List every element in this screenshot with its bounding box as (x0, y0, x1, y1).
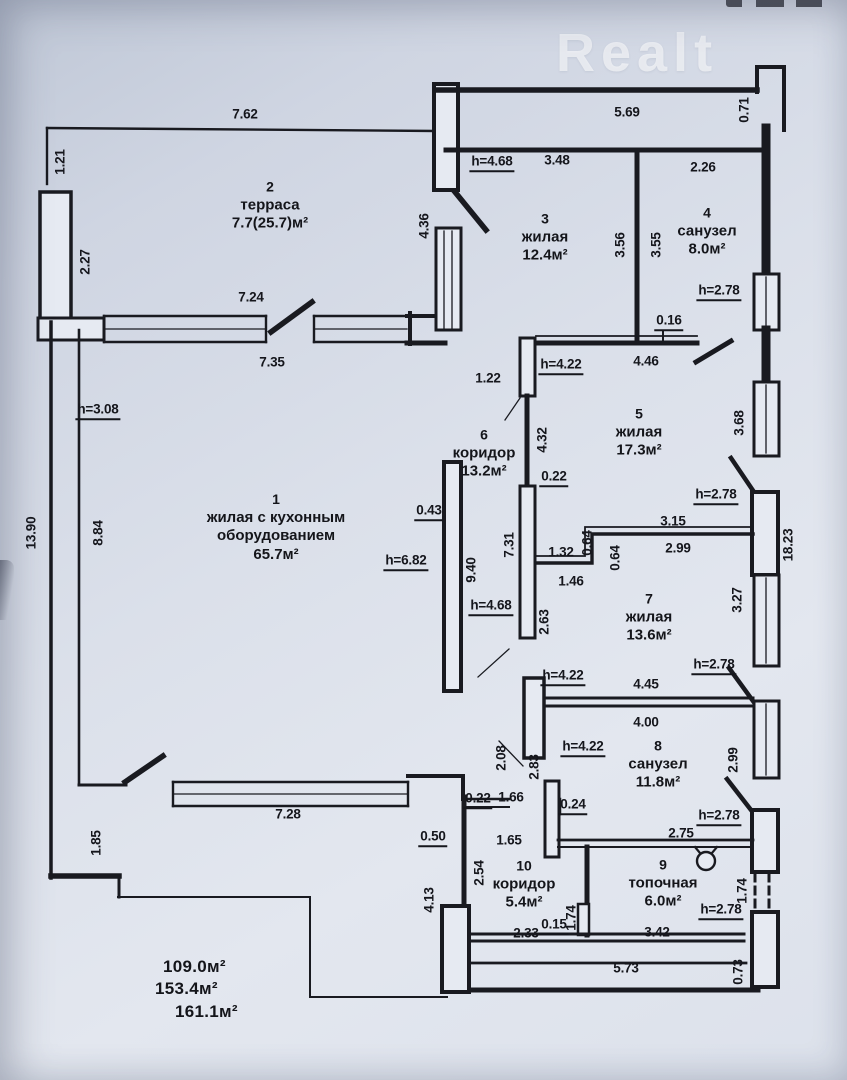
dimension-label: 1.22 (475, 371, 500, 385)
dimension-label: 3.56 (613, 232, 627, 257)
realt-watermark: Realt (556, 22, 718, 84)
cropped-text-fragment (726, 0, 838, 7)
dimension-label: 0.15 (539, 917, 568, 935)
dimension-label: 0.64 (608, 545, 622, 570)
dimension-label: h=6.82 (383, 553, 428, 571)
dimension-label: 3.55 (649, 232, 663, 257)
dimension-label: h=4.22 (560, 739, 605, 757)
dimension-label: 2.08 (494, 745, 508, 770)
dimension-label: 2.54 (472, 860, 486, 885)
dimension-label: 2.33 (513, 926, 538, 940)
dimension-label: 7.31 (502, 532, 516, 557)
room-label: 9топочная6.0м² (628, 857, 697, 912)
dimension-label: 0.22 (463, 791, 492, 809)
area-totals: 109.0м²153.4м²161.1м² (163, 956, 238, 1023)
floorplan-photo: Realt 7.621.212.274.365.690.71h=4.683.48… (0, 0, 847, 1080)
dimension-label: 4.13 (422, 887, 436, 912)
dimension-label: h=2.78 (693, 487, 738, 505)
dimension-label: 1.65 (496, 833, 521, 847)
dimension-label: 3.68 (732, 410, 746, 435)
dimension-label: h=4.22 (540, 668, 585, 686)
dimension-label: 4.00 (633, 715, 658, 729)
dimension-label: 7.28 (275, 807, 300, 821)
dimension-label: h=2.78 (696, 283, 741, 301)
dimension-label: 0.50 (418, 829, 447, 847)
dimension-label: 9.40 (464, 557, 478, 582)
dimension-label: 1.46 (558, 574, 583, 588)
dimension-label: 0.73 (731, 959, 745, 984)
dimension-label: 2.27 (78, 249, 92, 274)
dimension-label: 0.43 (414, 503, 443, 521)
dimension-label: 0.64 (580, 530, 594, 555)
dimension-label: 2.63 (537, 609, 551, 634)
dimension-label: 4.46 (633, 354, 658, 368)
dimension-label: h=2.78 (696, 808, 741, 826)
dimension-label: 4.36 (417, 213, 431, 238)
dimension-label: 18.23 (781, 529, 795, 562)
dimension-label: 2.99 (726, 747, 740, 772)
room-label: 1жилая с кухоннымоборудованием65.7м² (207, 491, 345, 565)
room-label: 6коридор13.2м² (453, 427, 516, 482)
dimension-label: 7.35 (259, 355, 284, 369)
room-label: 10коридор5.4м² (493, 858, 556, 913)
dimension-label: 2.83 (527, 754, 541, 779)
dimension-label: 1.21 (53, 149, 67, 174)
dimension-label: 7.62 (232, 107, 257, 121)
dimension-label: h=2.78 (698, 902, 743, 920)
room-label: 4санузел8.0м² (677, 205, 736, 260)
dimension-label: h=2.78 (691, 657, 736, 675)
dimension-label: h=4.68 (469, 154, 514, 172)
dimension-label: 4.45 (633, 677, 658, 691)
room-label: 7жилая13.6м² (626, 591, 672, 646)
room-label: 8санузел11.8м² (628, 738, 687, 793)
dimension-label: 2.75 (668, 826, 693, 840)
dimension-label: h=4.22 (538, 357, 583, 375)
dimension-label: 13.90 (24, 517, 38, 550)
dimension-label: h=4.68 (468, 598, 513, 616)
dimension-label: 0.24 (558, 797, 587, 815)
dimension-label: 1.66 (498, 790, 523, 804)
dimension-label: 1.32 (548, 545, 573, 559)
dimension-label: 0.22 (539, 469, 568, 487)
dimension-label: 4.32 (535, 427, 549, 452)
room-label: 5жилая17.3м² (616, 406, 662, 461)
dimension-label: 3.15 (660, 514, 685, 528)
dimension-label: 0.16 (654, 313, 683, 331)
dimension-label: 1.85 (89, 830, 103, 855)
dimension-label: 1.74 (735, 878, 749, 903)
room-label: 2терраса7.7(25.7)м² (232, 179, 308, 234)
dimension-label: 2.26 (690, 160, 715, 174)
dimension-label: 7.24 (238, 290, 263, 304)
dimension-label: 3.42 (644, 925, 669, 939)
dimension-label: 3.48 (544, 153, 569, 167)
room-label: 3жилая12.4м² (522, 211, 568, 266)
dimension-label: 0.71 (737, 97, 751, 122)
dimension-label: 8.84 (91, 520, 105, 545)
dimension-label: h=3.08 (75, 402, 120, 420)
dimension-label: 5.73 (613, 961, 638, 975)
dimension-label: 5.69 (614, 105, 639, 119)
dimension-label: 2.99 (665, 541, 690, 555)
dimension-label: 3.27 (730, 587, 744, 612)
